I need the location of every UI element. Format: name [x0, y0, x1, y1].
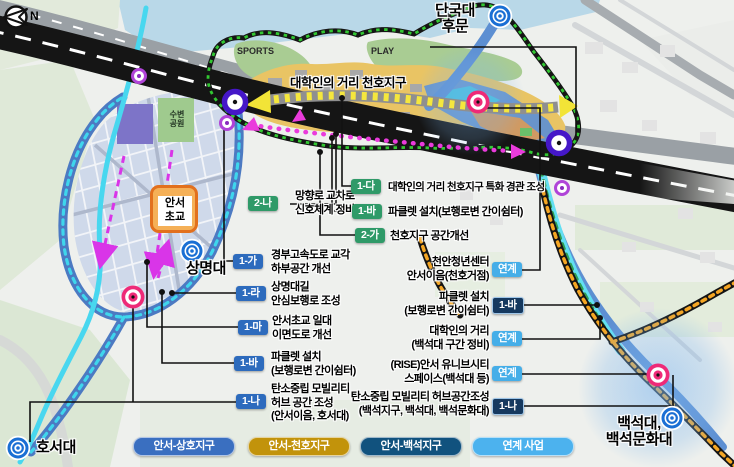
badge-1ma: 1-마 — [238, 320, 268, 335]
badge-1ba-left: 1-바 — [234, 356, 264, 371]
callout-link3-text: (RISE)안서 유니브시티 스페이스(백석대 등) — [319, 359, 489, 386]
play-label: PLAY — [371, 46, 394, 56]
badge-1na-left: 1-나 — [236, 394, 266, 409]
landmark-sangmyung: 상명대 — [186, 261, 226, 277]
badge-2ga: 2-가 — [355, 228, 385, 243]
legend-anseo-sangho: 안서-상호지구 — [133, 437, 235, 456]
landmark-hoseo: 호서대 — [36, 440, 76, 456]
badge-1da: 1-다 — [351, 179, 381, 194]
north-label: N — [30, 9, 39, 23]
callout-1da-text: 대학인의 거리 천호지구 특화 경관 조성 — [388, 181, 545, 195]
badge-link1: 연계 — [492, 262, 522, 277]
callout-1na-right-text: 탄소중립 모빌리티 허브공간조성 (백석지구, 백석대, 백석문화대) — [319, 391, 489, 418]
badge-1ba-right: 1-바 — [492, 297, 524, 314]
badge-2na: 2-나 — [248, 196, 278, 211]
anseo-elementary-label: 안서 초교 — [158, 196, 192, 226]
legend-anseo-baekseok: 안서-백석지구 — [360, 437, 462, 456]
landmark-baekseok: 백석대, 백석문화대 — [583, 416, 695, 448]
badge-1na-right: 1-나 — [492, 398, 524, 415]
landmark-dankook-gate: 단국대 후문 — [420, 3, 490, 35]
badge-1ga: 1-가 — [233, 254, 263, 269]
badge-link3: 연계 — [492, 366, 522, 381]
north-compass-icon — [4, 7, 27, 28]
badge-1ra: 1-라 — [236, 286, 266, 301]
callout-2na-text: 망향로 교차로 신호체계 정비 — [295, 190, 355, 217]
badge-link2: 연계 — [492, 331, 522, 346]
badge-1ba-center: 1-바 — [352, 204, 382, 219]
sports-label: SPORTS — [237, 46, 274, 56]
callout-link1-text: 천안청년센터 안서이음(천호거점) — [319, 256, 489, 283]
legend-anseo-cheonho: 안서-천호지구 — [248, 437, 350, 456]
callout-link2-text: 대학인의 거리 (백석대 구간 정비) — [319, 325, 489, 352]
waterside-park-label: 수변 공원 — [158, 110, 196, 128]
callout-1ba-center-text: 파클렛 설치(보행로변 간이쉼터) — [388, 206, 523, 220]
callout-2ga-text: 천호지구 공간개선 — [390, 230, 469, 244]
plan-map: N 단국대 후문 상명대 호서대 백석대, 백석문화대 대학인의 거리 천호지구… — [0, 0, 734, 467]
legend-linked-projects: 연계 사업 — [472, 437, 574, 456]
cheonho-street-label: 대학인의 거리 천호지구 — [290, 72, 406, 91]
callout-1ba-right-text: 파클렛 설치 (보행로변 간이쉼터) — [319, 291, 489, 318]
